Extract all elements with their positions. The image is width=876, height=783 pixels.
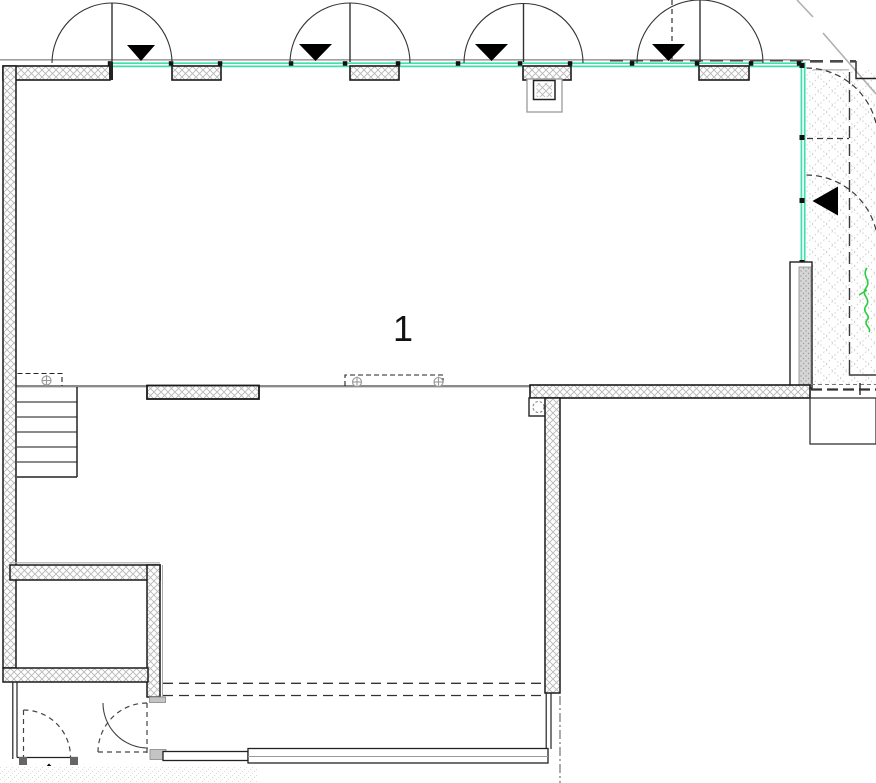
wall-pier: [523, 66, 571, 80]
door-jamb: [70, 757, 78, 765]
fixture-symbol-icon: [353, 377, 362, 388]
wall-pier: [147, 386, 259, 400]
fixture-symbol-icon: [434, 377, 443, 388]
wall-pier: [699, 66, 749, 80]
fixture-symbol-icon: [42, 375, 51, 386]
wall-pier: [350, 66, 399, 80]
wall-pier: [172, 66, 221, 80]
wall-fixture: [527, 79, 562, 112]
floor-plan-canvas: 1: [0, 0, 876, 783]
wall-pier: [3, 66, 110, 80]
room-label: 1: [393, 308, 413, 350]
floor-plan-drawing: [0, 0, 876, 783]
door-swing-direction-icon: [299, 44, 332, 61]
facade-wall: [248, 749, 548, 764]
right-wall-column: [790, 262, 812, 388]
closet-walls: [3, 563, 166, 703]
stairs: [17, 387, 77, 477]
interior-wall: [10, 565, 160, 580]
interior-wall: [530, 385, 810, 398]
dashed-door: [98, 703, 147, 757]
door-swing-direction-icon: [475, 44, 508, 61]
door-swing-direction-icon: [127, 45, 155, 61]
mid-wall: [6, 374, 810, 417]
terrace-paving: [806, 70, 876, 385]
entrance-doors: [52, 0, 763, 63]
interior-wall: [545, 398, 560, 693]
wall-cap: [150, 697, 166, 703]
interior-wall: [3, 668, 148, 682]
bottom-walls: [0, 398, 560, 783]
lower-right-box: [810, 383, 876, 444]
door-swing-arc: [103, 703, 148, 748]
exterior-paving: [0, 766, 258, 782]
dashed-door: [24, 710, 71, 757]
door-swing-direction-icon: [652, 44, 685, 61]
door-jamb: [19, 757, 27, 765]
interior-wall: [147, 565, 160, 697]
facade-wall: [163, 752, 248, 761]
